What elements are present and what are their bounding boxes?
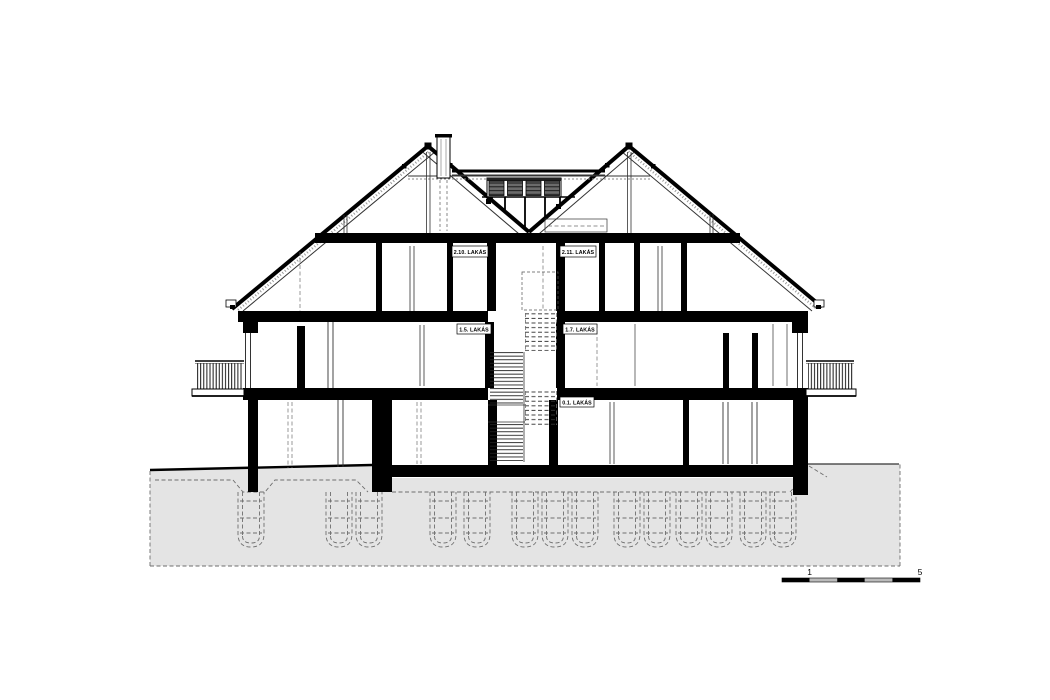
top-floor <box>300 243 687 311</box>
column <box>297 326 305 388</box>
window-lines <box>610 402 614 464</box>
scale-bar: 1 5 <box>782 567 923 582</box>
roof-slope-left-outer <box>232 146 428 309</box>
stair-flight-upper <box>490 352 523 404</box>
terrain <box>150 464 900 566</box>
column <box>723 333 729 388</box>
stair-dashed-flight-upper <box>525 313 557 351</box>
staircase <box>488 313 557 462</box>
scale-tick-1: 1 <box>807 567 812 577</box>
window-lines <box>420 325 424 386</box>
terrain-fill <box>150 464 900 566</box>
pilotis-column <box>248 400 258 492</box>
stair-flight-above-dashed <box>522 272 558 310</box>
exterior-wall-right <box>793 400 808 495</box>
apartment-label-0-1: 0.1. LAKÁS <box>560 397 594 407</box>
stair-flight-lower <box>490 423 523 461</box>
railing <box>197 363 243 389</box>
eave-left <box>226 300 236 309</box>
ground-floor-slab <box>372 465 808 477</box>
railing <box>808 363 853 389</box>
glazing-right <box>798 333 803 388</box>
balcony-slab <box>192 389 244 396</box>
apartment-label-text: 1.7. LAKÁS <box>565 326 595 333</box>
architectural-section-drawing: 2.10. LAKÁS 2.11. LAKÁS 1.5. LAKÁS 1.7. … <box>0 0 1050 700</box>
apartment-label-1-7: 1.7. LAKÁS <box>563 324 597 334</box>
section-canvas: 2.10. LAKÁS 2.11. LAKÁS 1.5. LAKÁS 1.7. … <box>0 0 1050 700</box>
apartment-label-text: 1.5. LAKÁS <box>459 326 489 333</box>
balcony-slab <box>806 389 856 396</box>
roof-peak-left <box>425 143 432 150</box>
clerestory <box>452 171 605 228</box>
column <box>752 333 758 388</box>
balcony-left <box>192 361 244 396</box>
scale-tick-5: 5 <box>918 567 923 577</box>
attic-floor-slab <box>315 233 740 243</box>
stair-wall <box>487 243 496 311</box>
second-floor-slab-right <box>557 311 808 322</box>
glazing-left <box>246 333 251 388</box>
second-floor-slab-left <box>238 311 488 322</box>
apartment-label-1-5: 1.5. LAKÁS <box>457 324 491 334</box>
apartment-label-text: 2.11. LAKÁS <box>562 249 595 256</box>
chimney <box>435 134 452 231</box>
first-floor-slab-right <box>557 388 808 400</box>
apartment-label-text: 2.10. LAKÁS <box>454 249 487 256</box>
apartment-label-text: 0.1. LAKÁS <box>562 399 592 406</box>
basement-wall <box>372 390 392 492</box>
chimney-cap <box>435 134 452 138</box>
roof-peak-right <box>626 143 633 150</box>
first-floor-slab-left <box>243 388 488 400</box>
stair-dashed-flight-lower <box>525 391 557 425</box>
apartment-label-2-10: 2.10. LAKÁS <box>452 246 488 257</box>
apartment-label-2-11: 2.11. LAKÁS <box>560 246 596 257</box>
balcony-right <box>806 361 856 396</box>
